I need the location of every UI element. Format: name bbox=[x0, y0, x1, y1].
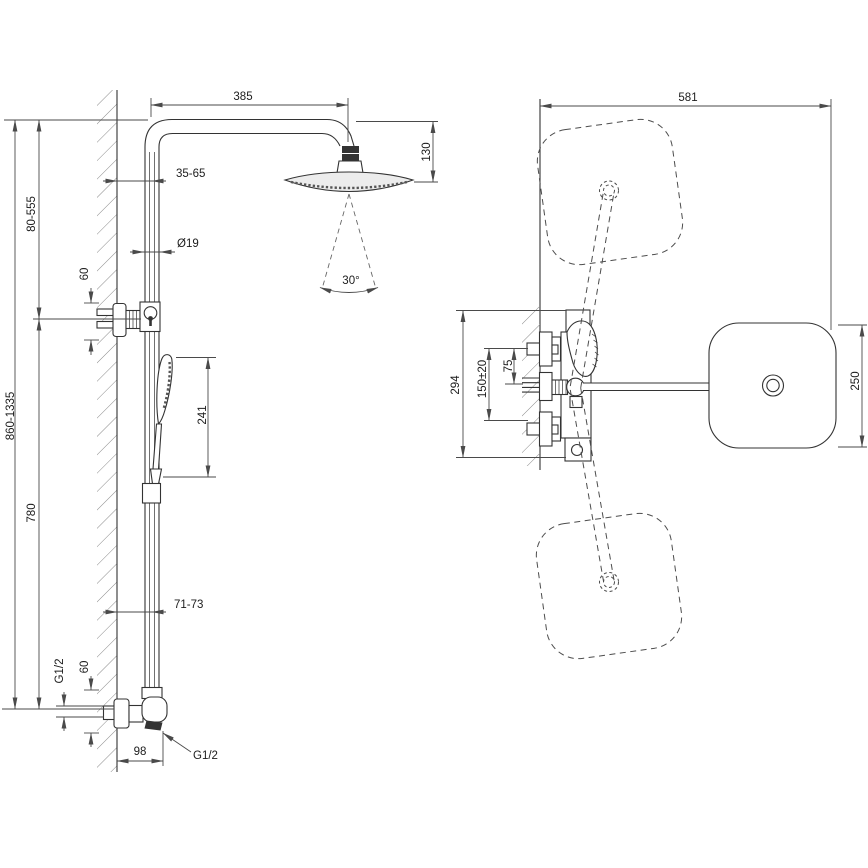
swivel-nut bbox=[342, 146, 359, 153]
wall-line-front bbox=[522, 99, 540, 470]
dim-upper-height-label: 80-555 bbox=[26, 196, 38, 232]
rail-collar bbox=[143, 484, 161, 504]
dim-spray-angle-label: 30° bbox=[342, 275, 359, 287]
dim-inlet-thread-label: G1/2 bbox=[54, 659, 66, 684]
valve-flange bbox=[114, 699, 129, 728]
valve-body bbox=[142, 697, 167, 722]
head-cap bbox=[337, 161, 363, 173]
outlet-leader-line bbox=[163, 733, 191, 752]
dim-outlet-thread-label: G1/2 bbox=[193, 750, 218, 762]
front-view: 581 294 150±20 75 250 bbox=[450, 92, 867, 663]
overhead-shower-head bbox=[285, 146, 413, 192]
swivel-nut-lower bbox=[342, 154, 359, 161]
shower-head-horizontal bbox=[583, 323, 836, 448]
dim-mixer-height-label: 294 bbox=[450, 375, 462, 395]
dim-head-width-label: 250 bbox=[850, 371, 862, 390]
dim-bracket-offset-label: 60 bbox=[79, 268, 91, 281]
wall-hatch-front bbox=[522, 306, 540, 466]
wall-hatch bbox=[97, 90, 117, 772]
technical-drawing-page: 385 130 35-65 80-555 Ø19 60 30° 860-1335… bbox=[0, 0, 868, 868]
dim-head-height-label: 130 bbox=[421, 142, 433, 161]
mounting-hole bbox=[572, 445, 583, 456]
dim-inlet-offset-label: 60 bbox=[79, 661, 91, 674]
valve-connector bbox=[129, 706, 143, 723]
dim-lower-height-label: 780 bbox=[26, 503, 38, 522]
dim-arm-reach-label: 385 bbox=[233, 91, 252, 103]
dim-head-reach-label: 581 bbox=[678, 92, 697, 104]
dim-wall-to-pipe-lower-label: 71-73 bbox=[174, 599, 203, 611]
joint-lock bbox=[570, 397, 582, 408]
wall-section bbox=[97, 90, 117, 772]
dim-handle-to-inlet-label: 75 bbox=[503, 360, 515, 373]
dim-pipe-diameter-label: Ø19 bbox=[177, 238, 199, 250]
dim-inlet-center-distance-label: 150±20 bbox=[477, 360, 489, 398]
spray-angle-arc bbox=[320, 288, 378, 293]
hand-shower bbox=[143, 355, 173, 503]
head-plate bbox=[709, 323, 836, 448]
side-view: 385 130 35-65 80-555 Ø19 60 30° 860-1335… bbox=[2, 90, 438, 772]
dim-overall-height-label: 860-1335 bbox=[5, 392, 17, 441]
dim-hand-shower-length-label: 241 bbox=[197, 405, 209, 424]
hand-shower-grip-end bbox=[151, 469, 162, 484]
dim-wall-to-pipe-upper-label: 35-65 bbox=[176, 168, 205, 180]
supply-stub bbox=[104, 706, 115, 720]
shower-technical-drawing: 385 130 35-65 80-555 Ø19 60 30° 860-1335… bbox=[0, 0, 868, 868]
dim-outlet-offset-label: 98 bbox=[134, 746, 147, 758]
dimensions-side-view: 385 130 35-65 80-555 Ø19 60 30° 860-1335… bbox=[2, 91, 438, 766]
